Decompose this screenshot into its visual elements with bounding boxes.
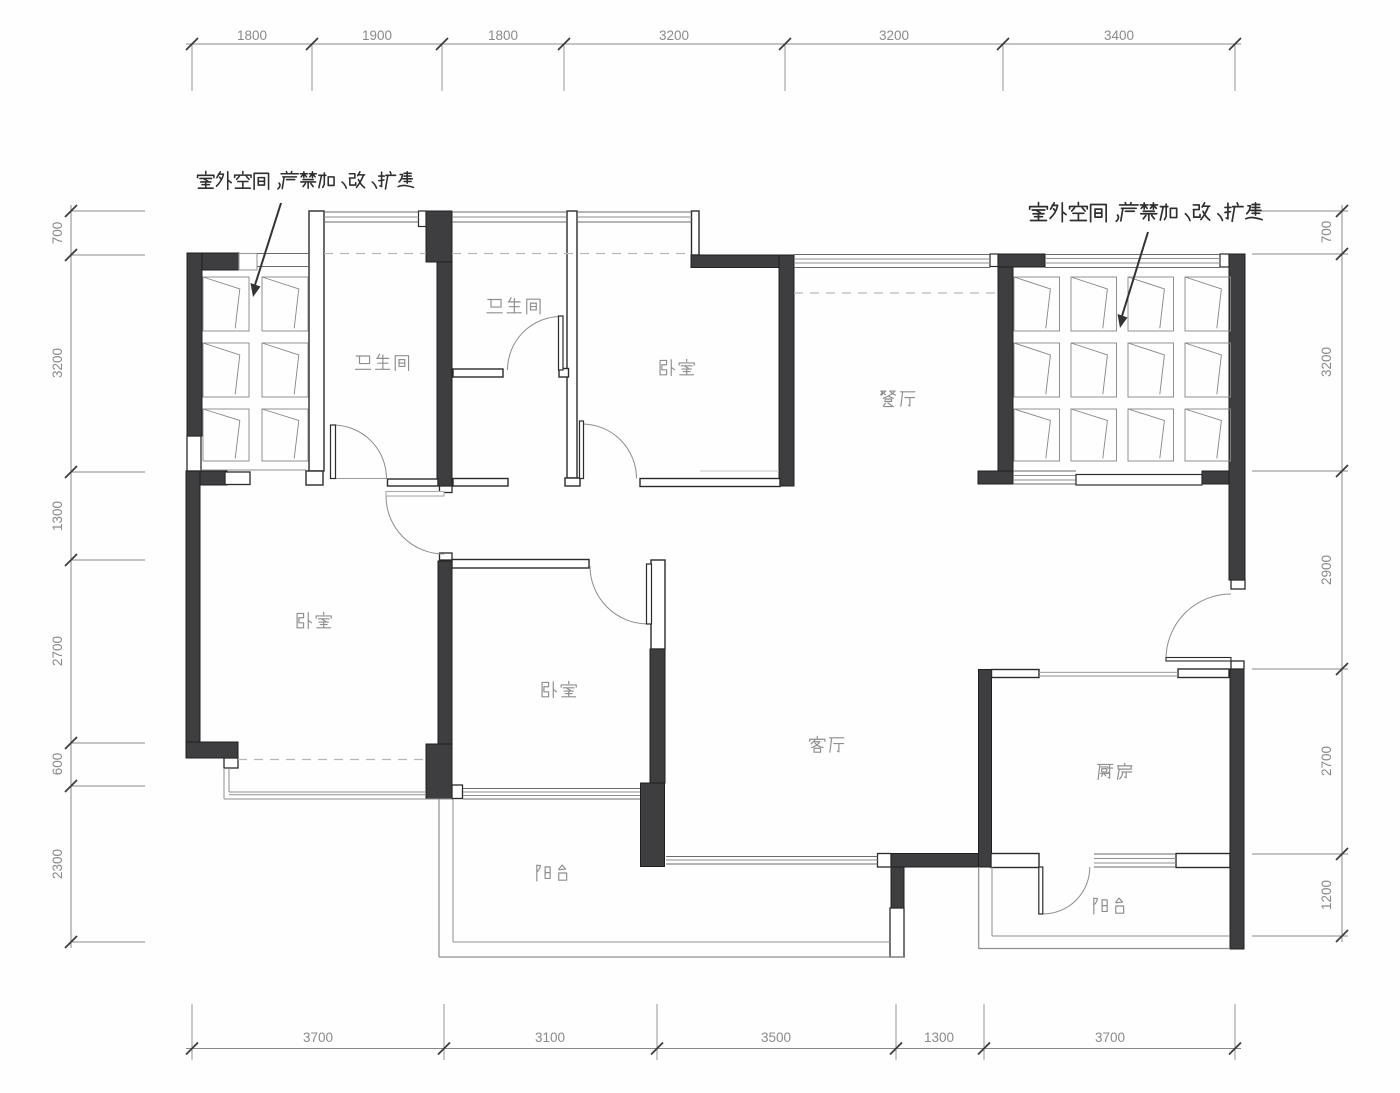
svg-text:3400: 3400 — [1104, 28, 1134, 43]
svg-text:3500: 3500 — [761, 1030, 791, 1045]
svg-text:3100: 3100 — [535, 1030, 565, 1045]
svg-text:3700: 3700 — [303, 1030, 333, 1045]
svg-text:1300: 1300 — [50, 501, 65, 531]
svg-text:3200: 3200 — [1319, 347, 1334, 377]
svg-text:2700: 2700 — [1319, 746, 1334, 776]
svg-text:1800: 1800 — [237, 28, 267, 43]
svg-text:1800: 1800 — [488, 28, 518, 43]
svg-text:1200: 1200 — [1319, 880, 1334, 910]
svg-text:1300: 1300 — [924, 1030, 954, 1045]
svg-text:2900: 2900 — [1319, 555, 1334, 585]
svg-text:3200: 3200 — [50, 348, 65, 378]
svg-text:1900: 1900 — [362, 28, 392, 43]
svg-text:700: 700 — [1319, 221, 1334, 244]
svg-text:3200: 3200 — [879, 28, 909, 43]
svg-text:600: 600 — [50, 753, 65, 776]
svg-text:2300: 2300 — [50, 849, 65, 879]
svg-text:700: 700 — [50, 222, 65, 245]
svg-text:3700: 3700 — [1095, 1030, 1125, 1045]
svg-text:2700: 2700 — [50, 636, 65, 666]
svg-text:3200: 3200 — [659, 28, 689, 43]
